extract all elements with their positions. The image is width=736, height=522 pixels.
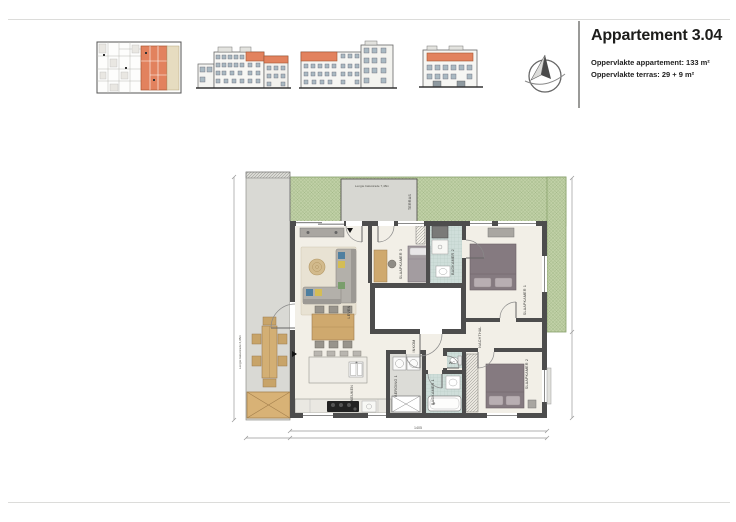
room-label-badkamer1: BADKAMER 1 xyxy=(431,379,435,405)
side-terrace xyxy=(246,172,290,420)
room-label-terras: TERRAS xyxy=(408,194,412,210)
room-label-nachthal: NACHTHAL xyxy=(478,326,482,347)
room-label-berging: BERGING 1 xyxy=(394,375,398,397)
room-label-leven: LEVEN xyxy=(347,305,351,318)
room-label-slaapkamer3: SLAAPKAMER 3 xyxy=(399,249,403,279)
floor-plan: Lengte balustrade 7,48m TERRAS xyxy=(0,0,736,522)
room-label-slaapkamer2: SLAAPKAMER 2 xyxy=(525,359,529,389)
room-label-slaapkamer1: SLAAPKAMER 1 xyxy=(523,285,527,315)
balustrade-top-label: Lengte balustrade 7,48m xyxy=(355,184,390,188)
balustrade-left-label: Lengte balustrade 2,95m xyxy=(238,334,242,369)
terras-box: Lengte balustrade 7,48m TERRAS xyxy=(341,179,417,222)
room-label-badkamer2: BADKAMER 2 xyxy=(451,249,455,275)
plan-sheet: Appartement 3.04 Oppervlakte appartement… xyxy=(0,0,736,522)
room-label-keuken: KEUKEN xyxy=(350,385,354,401)
building-core-void xyxy=(375,288,461,329)
room-label-inkom: INKOM xyxy=(412,339,416,352)
room-label-wc: WC xyxy=(449,361,456,365)
dimension-bottom-total: 1405 xyxy=(414,426,422,430)
